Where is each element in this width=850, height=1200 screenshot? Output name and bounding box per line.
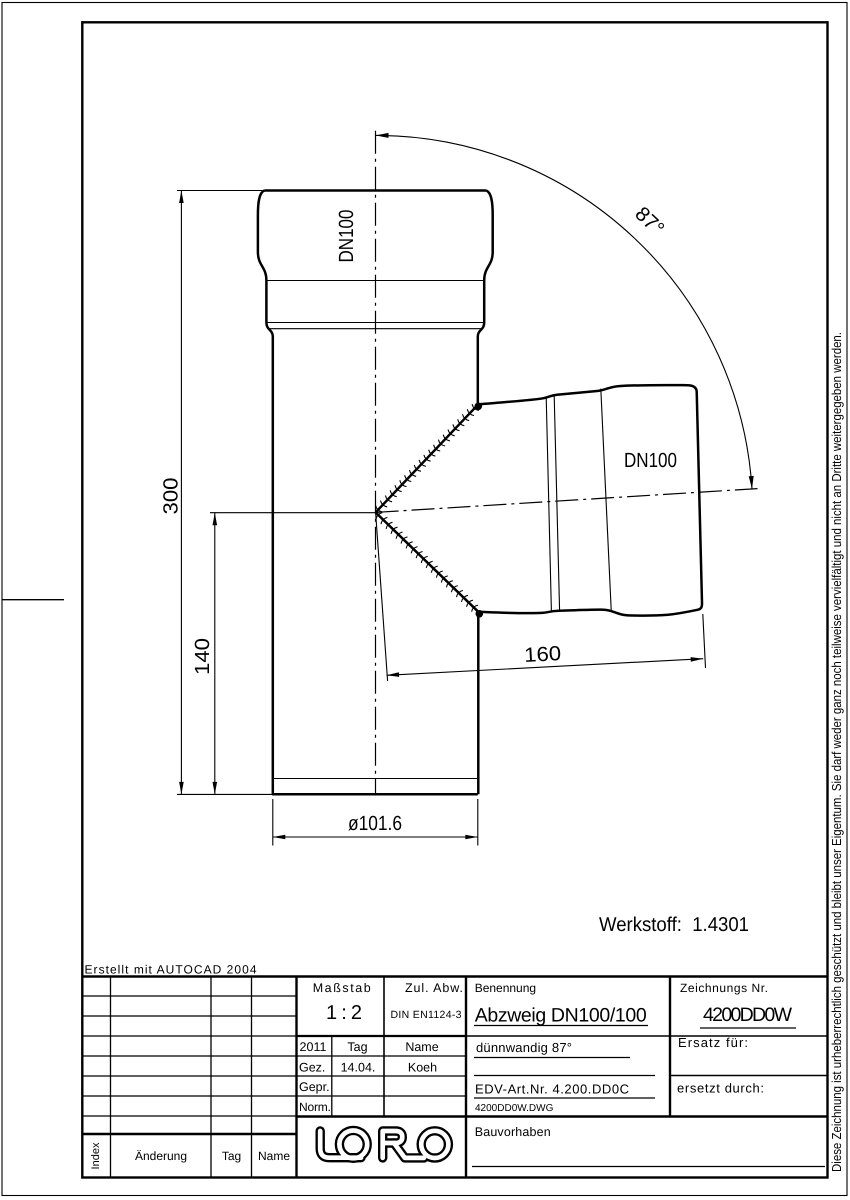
svg-text:DN100: DN100 [335, 210, 358, 263]
svg-text:14.04.: 14.04. [341, 1061, 376, 1075]
svg-text:Maßstab: Maßstab [313, 981, 371, 995]
svg-text:300: 300 [160, 478, 183, 515]
svg-text:Erstellt mit AUTOCAD 2004: Erstellt mit AUTOCAD 2004 [85, 963, 257, 977]
svg-text:2011: 2011 [300, 1040, 327, 1054]
svg-text:ersetzt durch:: ersetzt durch: [677, 1081, 764, 1096]
svg-text:Ersatz für:: Ersatz für: [678, 1035, 748, 1050]
svg-text:140: 140 [191, 638, 214, 675]
svg-text:Diese Zeichnung ist urheberrec: Diese Zeichnung ist urheberrechtlich ges… [829, 332, 844, 1172]
svg-text:Tag: Tag [347, 1040, 367, 1054]
svg-text:Zeichnungs Nr.: Zeichnungs Nr. [680, 981, 768, 995]
svg-text:Name: Name [405, 1040, 438, 1054]
svg-text:4200DD0W.DWG: 4200DD0W.DWG [475, 1103, 554, 1114]
svg-text:160: 160 [524, 642, 562, 667]
svg-text:Norm.: Norm. [299, 1100, 331, 1114]
svg-text:EDV-Art.Nr. 4.200.DD0C: EDV-Art.Nr. 4.200.DD0C [475, 1082, 629, 1097]
svg-text:ø101.6: ø101.6 [348, 812, 402, 835]
svg-text:Gepr.: Gepr. [299, 1080, 330, 1094]
svg-text:Index: Index [90, 1142, 102, 1169]
svg-text:Gez.: Gez. [299, 1061, 325, 1075]
svg-text:Bauvorhaben: Bauvorhaben [475, 1125, 551, 1139]
svg-text:Koeh: Koeh [408, 1061, 437, 1075]
svg-text:dünnwandig 87°: dünnwandig 87° [476, 1040, 572, 1055]
svg-text:Werkstoff: 1.4301: Werkstoff: 1.4301 [599, 914, 749, 936]
svg-text:Zul. Abw.: Zul. Abw. [405, 981, 463, 995]
svg-text:DIN EN1124-3: DIN EN1124-3 [391, 1009, 462, 1021]
svg-text:Name: Name [258, 1149, 290, 1163]
svg-text:Abzweig DN100/100: Abzweig DN100/100 [475, 1005, 647, 1027]
svg-text:DN100: DN100 [624, 449, 677, 472]
svg-text:Tag: Tag [222, 1149, 241, 1163]
svg-text:Änderung: Änderung [135, 1149, 187, 1163]
svg-text:4200DD0W: 4200DD0W [703, 1004, 793, 1026]
svg-text:1:2: 1:2 [326, 1002, 362, 1024]
svg-text:Benennung: Benennung [475, 981, 536, 995]
